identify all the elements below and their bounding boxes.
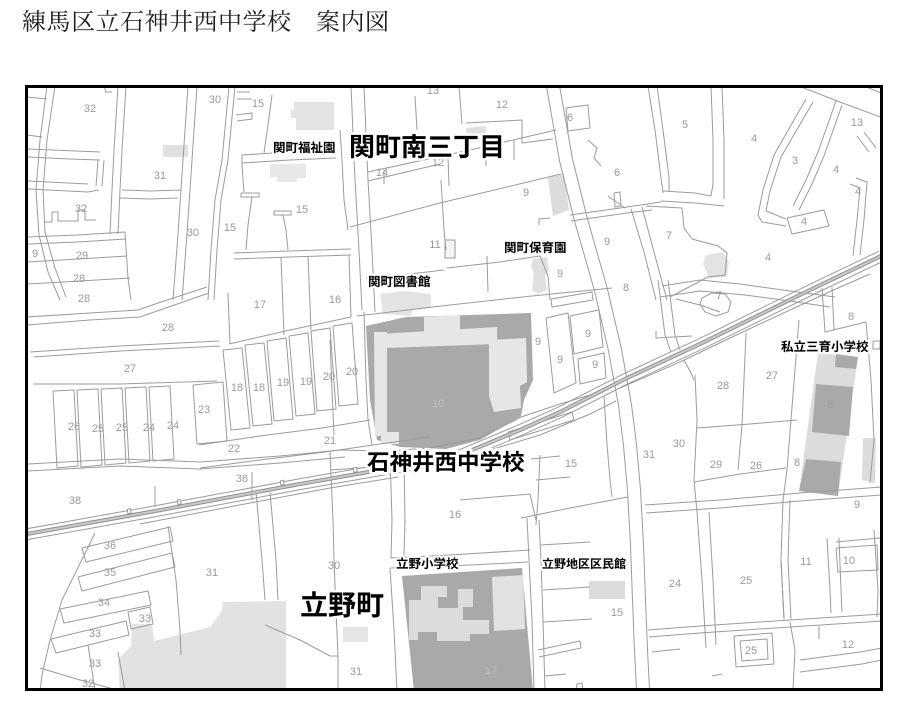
svg-text:31: 31 [643,449,655,461]
svg-text:9: 9 [32,248,38,260]
svg-text:19: 19 [300,376,312,388]
svg-text:23: 23 [198,404,210,416]
svg-text:34: 34 [98,597,110,609]
svg-text:29: 29 [710,459,722,471]
svg-text:30: 30 [328,560,340,572]
svg-text:4: 4 [751,133,757,145]
svg-text:17: 17 [254,299,266,311]
svg-text:8: 8 [623,282,629,294]
svg-text:15: 15 [296,204,308,216]
svg-text:21: 21 [324,435,336,447]
svg-text:11: 11 [429,239,440,251]
svg-text:9: 9 [557,354,563,366]
svg-text:15: 15 [565,458,577,470]
svg-text:19: 19 [277,377,289,389]
svg-text:36: 36 [104,540,116,552]
svg-text:29: 29 [76,250,88,262]
svg-text:18: 18 [253,382,265,394]
svg-text:31: 31 [350,666,362,678]
svg-text:9: 9 [585,328,591,340]
svg-text:33: 33 [89,658,101,670]
svg-text:7: 7 [666,230,672,242]
svg-text:8: 8 [827,399,833,411]
svg-text:6: 6 [567,112,573,124]
svg-text:14: 14 [376,167,388,179]
svg-text:4: 4 [855,186,861,198]
svg-text:9: 9 [592,359,598,371]
svg-text:30: 30 [187,227,199,239]
svg-text:9: 9 [604,236,610,248]
svg-text:22: 22 [228,443,240,455]
svg-text:30: 30 [209,94,221,106]
svg-text:25: 25 [745,645,757,657]
svg-text:10: 10 [432,398,444,410]
svg-text:35: 35 [104,567,116,579]
svg-text:15: 15 [252,98,264,110]
svg-text:9: 9 [523,187,529,199]
svg-text:13: 13 [851,117,863,129]
svg-text:20: 20 [346,366,358,378]
svg-text:38: 38 [69,495,81,507]
svg-text:25: 25 [116,422,128,434]
svg-text:15: 15 [224,222,236,234]
svg-text:28: 28 [162,322,174,334]
svg-text:28: 28 [78,293,90,305]
svg-text:15: 15 [611,607,623,619]
svg-text:9: 9 [854,499,860,511]
svg-text:5: 5 [682,119,688,131]
svg-text:12: 12 [842,639,854,651]
svg-text:26: 26 [750,460,762,472]
svg-text:3: 3 [792,155,798,167]
svg-text:33: 33 [89,628,101,640]
svg-text:6: 6 [614,167,620,179]
svg-text:11: 11 [800,556,811,568]
svg-text:27: 27 [766,370,778,382]
svg-text:8: 8 [794,457,800,469]
svg-text:27: 27 [124,363,136,375]
svg-text:28: 28 [717,380,729,392]
svg-text:16: 16 [329,294,341,306]
svg-text:8: 8 [848,311,854,323]
svg-text:9: 9 [535,336,541,348]
svg-text:24: 24 [143,422,155,434]
svg-text:28: 28 [73,273,85,285]
svg-text:16: 16 [449,509,461,521]
svg-text:32: 32 [75,203,87,215]
svg-text:31: 31 [154,170,166,182]
svg-text:18: 18 [231,382,243,394]
svg-text:25: 25 [92,423,104,435]
svg-text:24: 24 [669,578,681,590]
svg-text:17: 17 [485,665,497,677]
svg-text:9: 9 [557,268,563,280]
svg-text:31: 31 [206,567,218,579]
svg-text:33: 33 [139,613,151,625]
svg-text:7: 7 [716,290,722,302]
svg-text:4: 4 [801,216,807,228]
svg-text:32: 32 [84,103,96,115]
svg-text:25: 25 [740,575,752,587]
svg-text:38: 38 [236,473,248,485]
svg-text:26: 26 [68,421,80,433]
svg-text:12: 12 [496,99,508,111]
svg-text:4: 4 [765,252,771,264]
svg-text:24: 24 [167,420,179,432]
svg-text:4: 4 [833,164,839,176]
svg-text:10: 10 [843,555,855,567]
svg-text:20: 20 [323,371,335,383]
svg-text:30: 30 [673,438,685,450]
